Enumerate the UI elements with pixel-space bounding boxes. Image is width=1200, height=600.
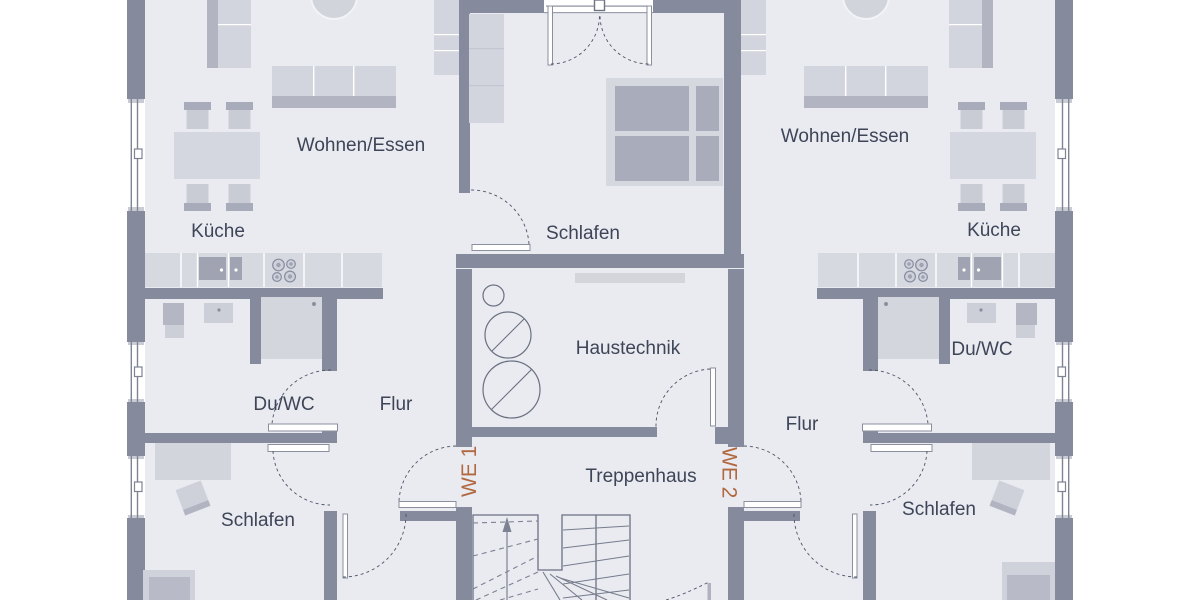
svg-text:Wohnen/Essen: Wohnen/Essen (297, 135, 426, 156)
svg-text:Flur: Flur (786, 414, 819, 435)
svg-text:Du/WC: Du/WC (951, 339, 1012, 360)
svg-text:Haustechnik: Haustechnik (576, 338, 681, 359)
svg-text:Du/WC: Du/WC (253, 394, 314, 415)
svg-text:Flur: Flur (380, 394, 413, 415)
svg-text:Schlafen: Schlafen (221, 510, 295, 531)
svg-text:WE 2: WE 2 (718, 447, 741, 498)
svg-text:Schlafen: Schlafen (902, 499, 976, 520)
svg-text:Treppenhaus: Treppenhaus (585, 466, 696, 487)
svg-text:Schlafen: Schlafen (546, 223, 620, 244)
svg-text:WE 1: WE 1 (458, 446, 481, 497)
svg-text:Küche: Küche (967, 220, 1021, 241)
svg-text:Küche: Küche (191, 221, 245, 242)
svg-text:Wohnen/Essen: Wohnen/Essen (781, 126, 910, 147)
